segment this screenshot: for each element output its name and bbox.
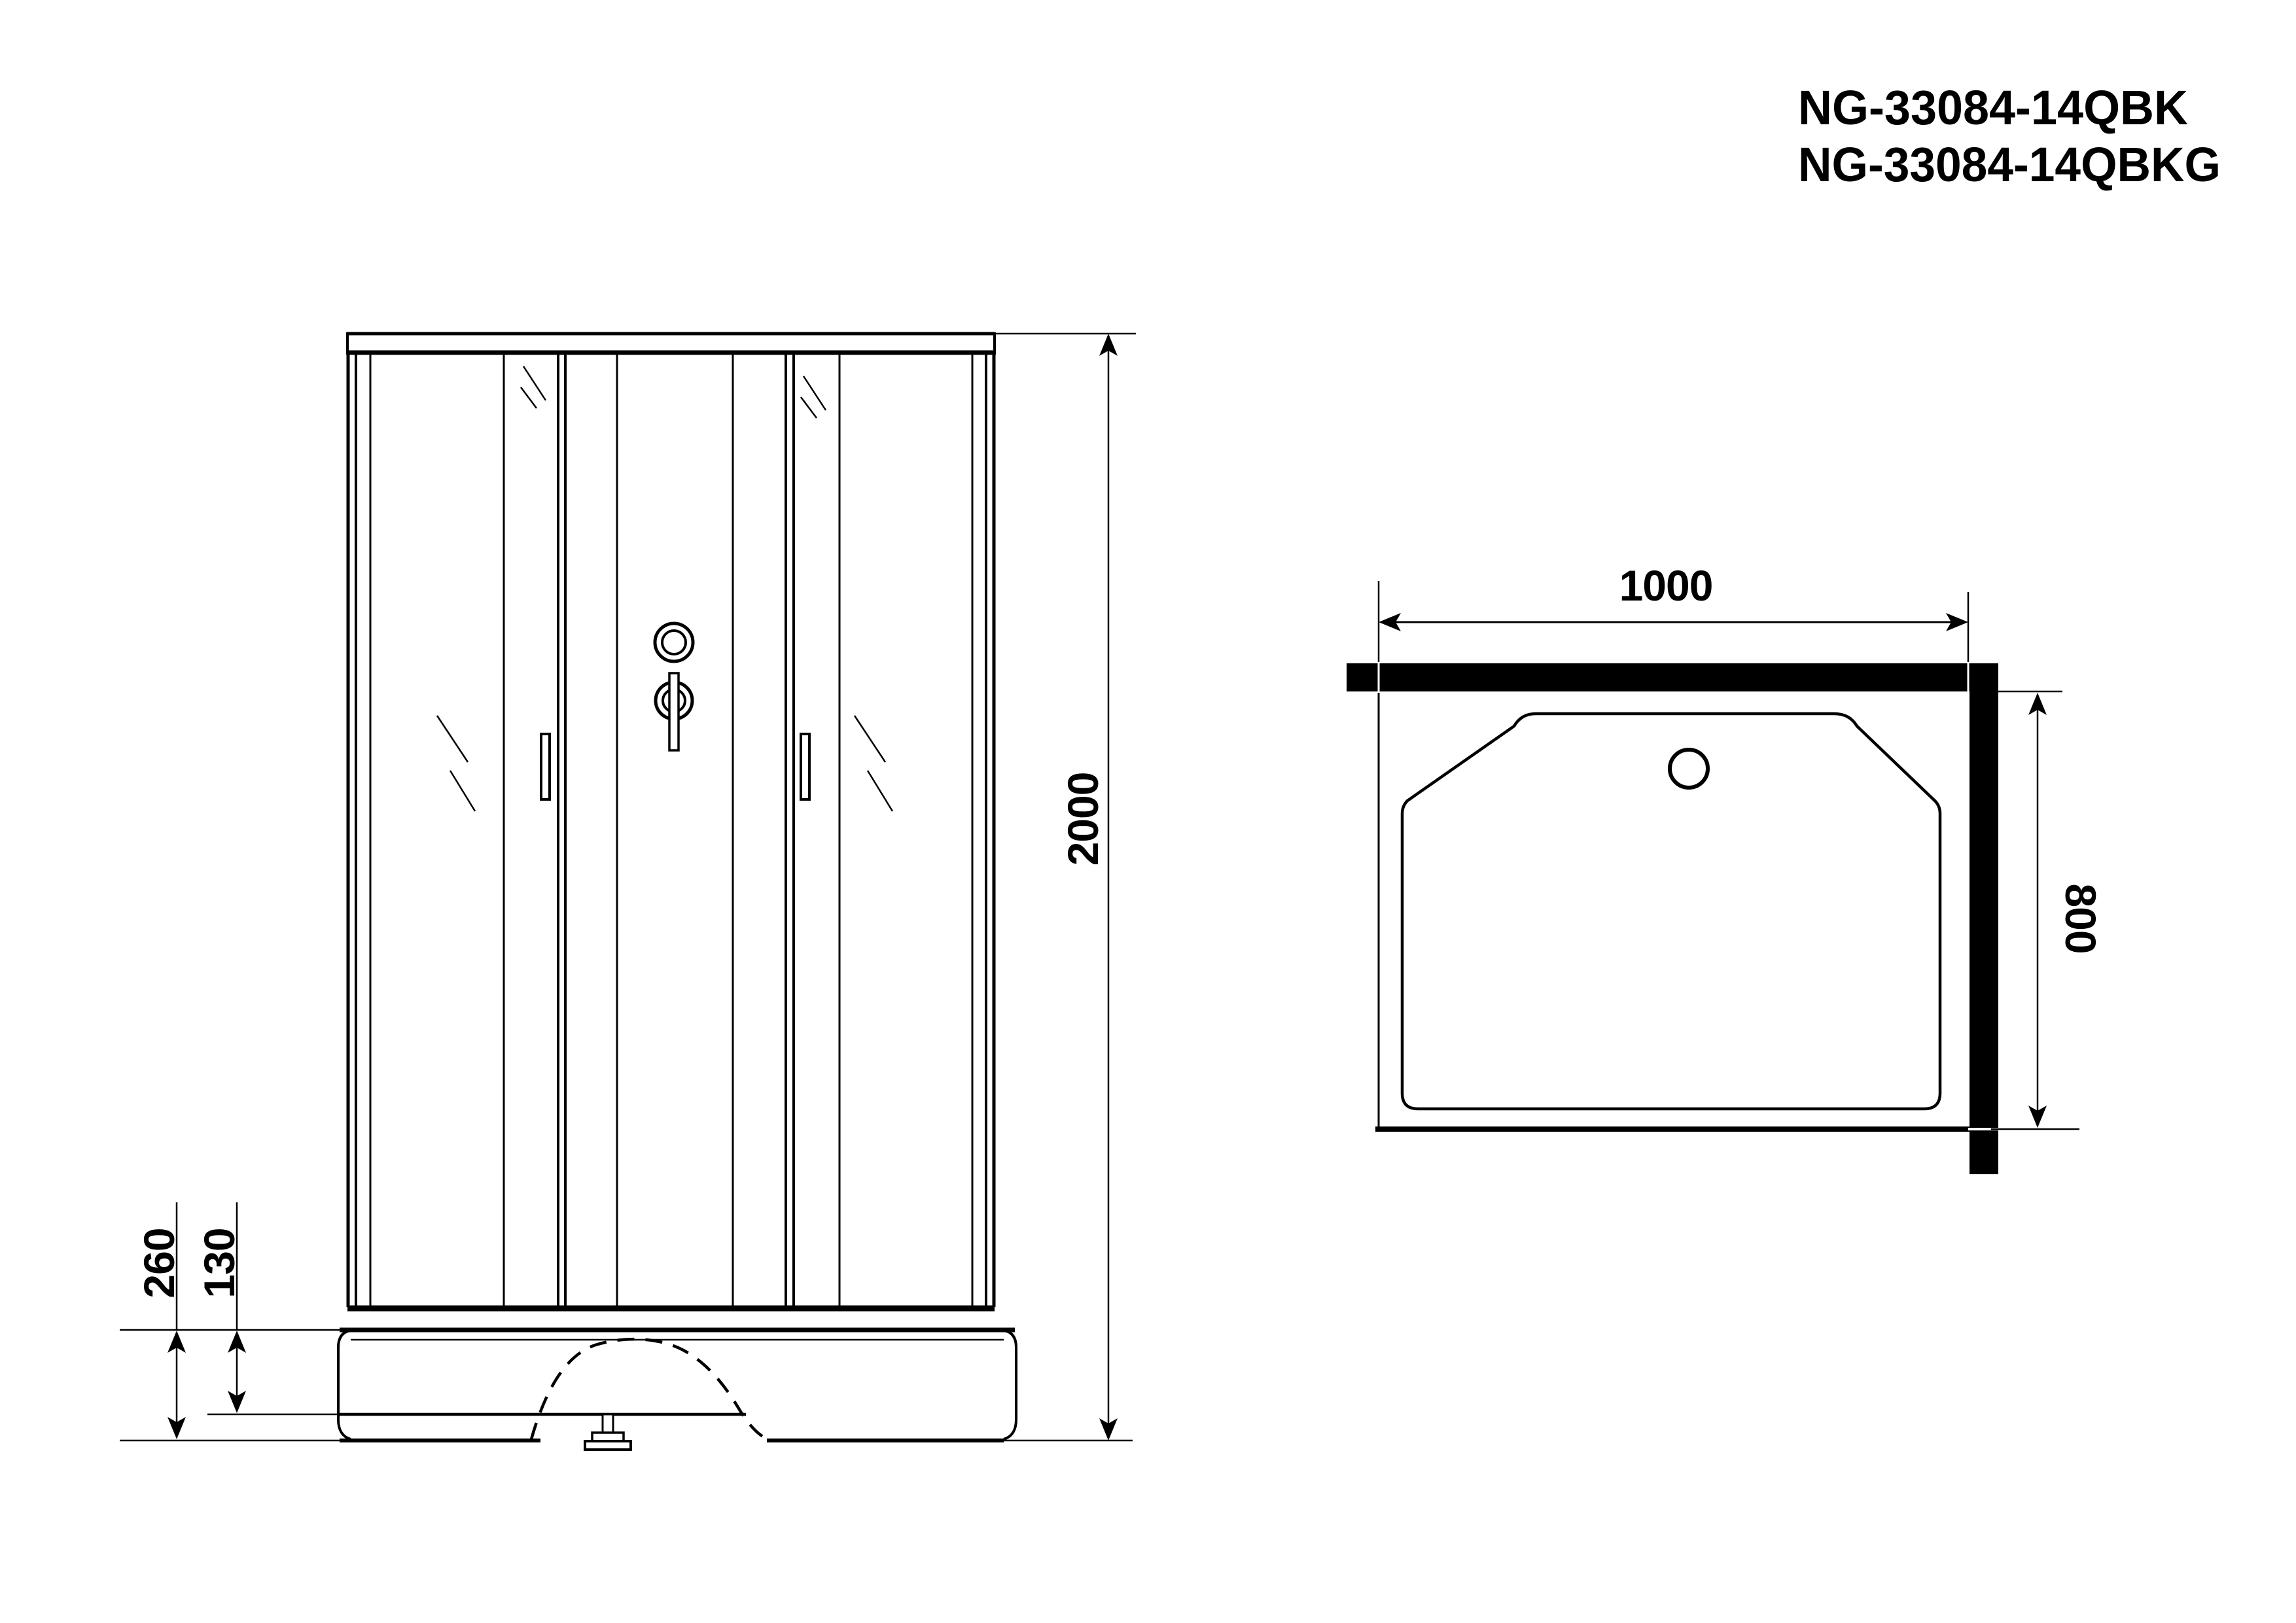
cabin-top-frame bbox=[347, 332, 995, 355]
plan-view: 1000 800 bbox=[1347, 561, 2105, 1174]
width-dimension-label: 1000 bbox=[1619, 561, 1713, 610]
model-number-line-2: NG-33084-14QBKG bbox=[1798, 137, 2221, 192]
tray-rim-dimension-label: 130 bbox=[195, 1228, 243, 1298]
door-handle-right bbox=[801, 734, 809, 799]
technical-drawing: NG-33084-14QBK NG-33084-14QBKG bbox=[0, 0, 2296, 1623]
base-height-dimension-label: 260 bbox=[135, 1228, 183, 1298]
door-handle-left bbox=[541, 734, 550, 799]
dimension-260: 260 bbox=[135, 1202, 186, 1439]
glass-panel-lines bbox=[347, 355, 995, 1308]
tray-apron-hidden-line bbox=[531, 1339, 767, 1439]
shower-tray-front bbox=[120, 1330, 1016, 1440]
dimension-800: 800 bbox=[1991, 691, 2105, 1129]
title-block: NG-33084-14QBK NG-33084-14QBKG bbox=[1798, 80, 2221, 192]
drawing-sheet: NG-33084-14QBK NG-33084-14QBKG bbox=[0, 0, 2296, 1623]
height-dimension-label: 2000 bbox=[1059, 773, 1107, 866]
front-elevation-view: 2000 260 130 bbox=[120, 332, 1136, 1450]
dimension-1000: 1000 bbox=[1379, 561, 1968, 662]
dimension-130: 130 bbox=[195, 1202, 246, 1413]
model-number-line-1: NG-33084-14QBK bbox=[1798, 80, 2188, 135]
drain-plan bbox=[1670, 750, 1708, 788]
glass-reflection-marks bbox=[437, 366, 892, 811]
back-wall bbox=[1347, 663, 1992, 691]
door-knob-icon bbox=[655, 623, 693, 750]
depth-dimension-label: 800 bbox=[2057, 883, 2105, 953]
dimension-2000: 2000 bbox=[995, 334, 1136, 1440]
drain-outlet bbox=[585, 1414, 631, 1450]
side-wall bbox=[1969, 663, 1998, 1174]
